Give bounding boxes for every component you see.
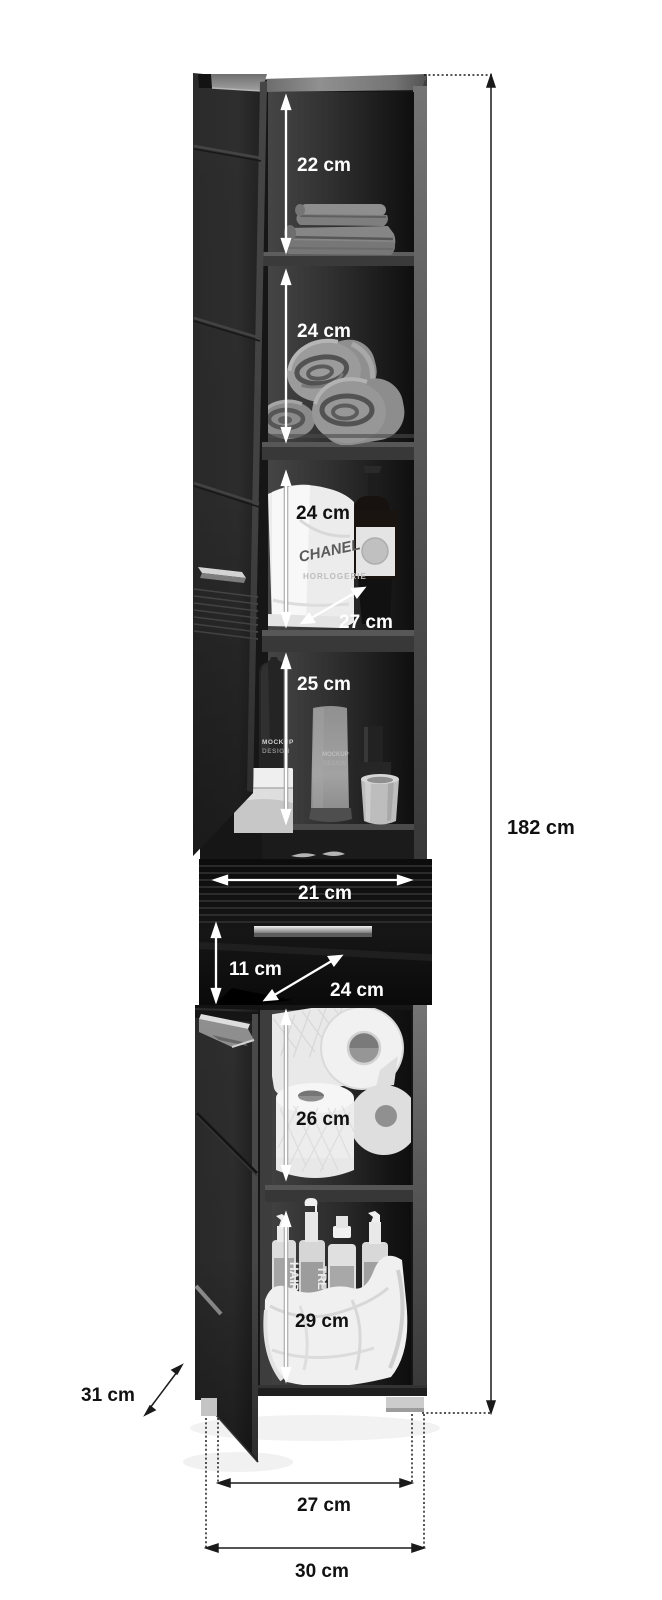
svg-text:21 cm: 21 cm <box>298 883 352 904</box>
svg-text:27 cm: 27 cm <box>339 612 393 633</box>
svg-text:HORLOGERIE: HORLOGERIE <box>303 572 367 581</box>
svg-text:11 cm: 11 cm <box>229 959 282 980</box>
svg-text:HAIR: HAIR <box>287 1262 301 1292</box>
svg-text:24 cm: 24 cm <box>297 321 351 342</box>
svg-text:24 cm: 24 cm <box>296 503 350 524</box>
svg-text:DESIGN: DESIGN <box>323 761 346 767</box>
svg-text:30 cm: 30 cm <box>295 1561 349 1582</box>
svg-text:22 cm: 22 cm <box>297 155 351 176</box>
svg-text:24 cm: 24 cm <box>330 980 384 1001</box>
svg-text:27 cm: 27 cm <box>297 1495 351 1516</box>
svg-text:25 cm: 25 cm <box>297 674 351 695</box>
svg-text:182 cm: 182 cm <box>507 817 575 839</box>
svg-text:26 cm: 26 cm <box>296 1109 350 1130</box>
svg-text:MOCKUP: MOCKUP <box>322 752 349 758</box>
svg-text:TRE: TRE <box>315 1266 329 1290</box>
svg-text:31 cm: 31 cm <box>81 1385 135 1406</box>
svg-text:MOCKUP: MOCKUP <box>262 739 294 746</box>
svg-text:29 cm: 29 cm <box>295 1311 349 1332</box>
